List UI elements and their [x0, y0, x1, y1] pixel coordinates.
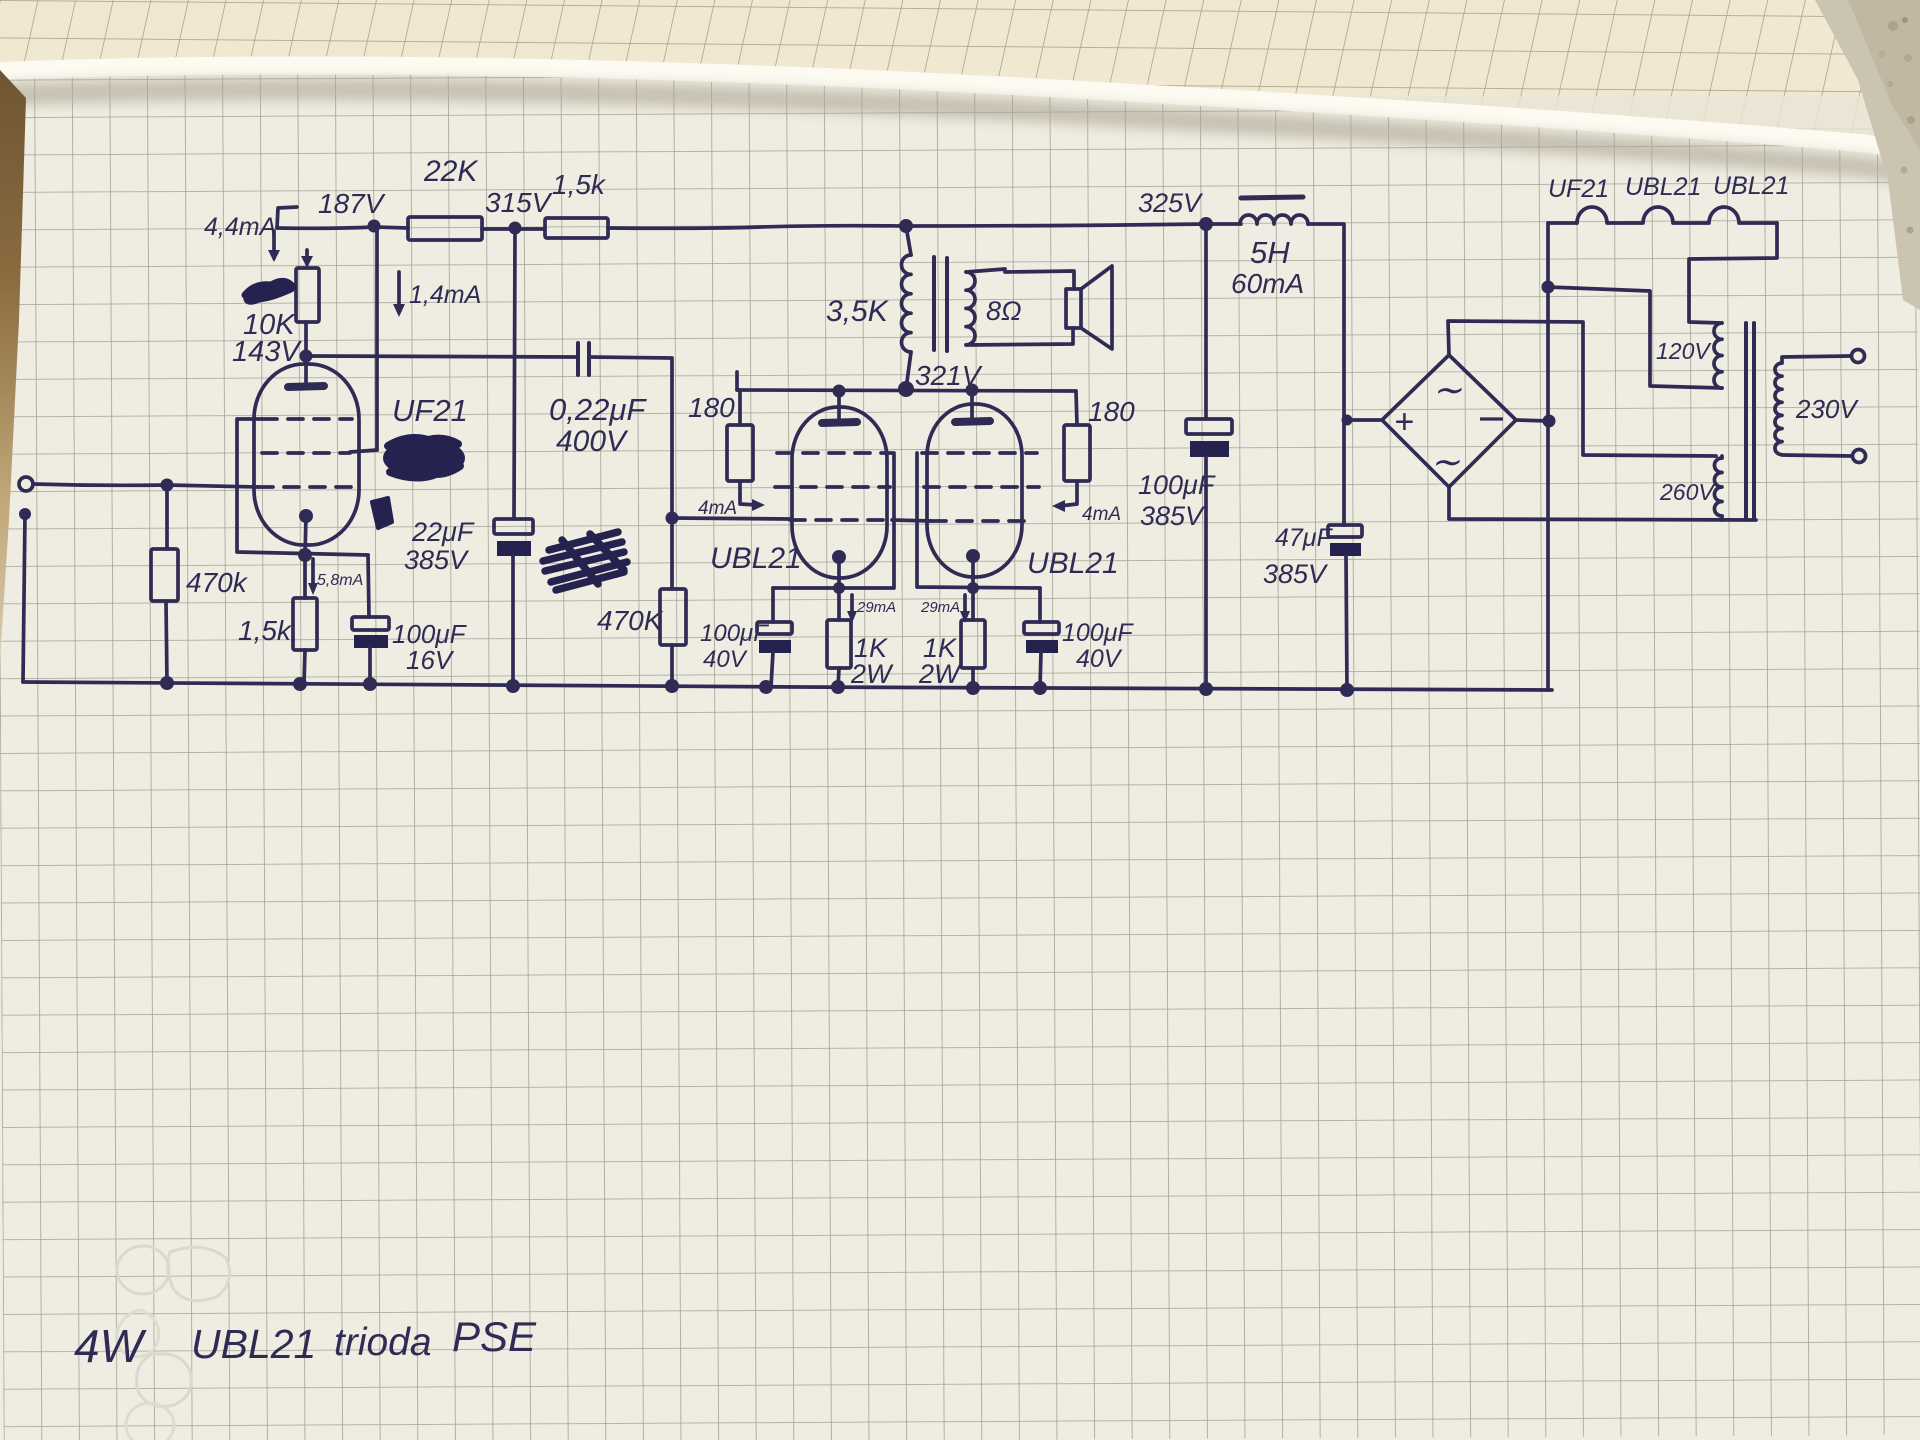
svg-text:470k: 470k	[186, 567, 249, 598]
svg-text:315V: 315V	[485, 187, 553, 218]
svg-text:PSE: PSE	[452, 1313, 537, 1360]
svg-text:trioda: trioda	[334, 1321, 432, 1364]
svg-text:0,22μF: 0,22μF	[549, 392, 647, 427]
svg-text:16V: 16V	[406, 645, 455, 675]
svg-text:385V: 385V	[1140, 501, 1206, 531]
svg-text:143V: 143V	[232, 336, 302, 368]
svg-text:100μF: 100μF	[700, 620, 769, 647]
svg-text:180: 180	[688, 392, 735, 423]
svg-text:230V: 230V	[1795, 394, 1859, 424]
svg-text:1,4mA: 1,4mA	[409, 281, 481, 309]
svg-text:1,5k: 1,5k	[238, 615, 293, 646]
svg-text:∼: ∼	[1430, 441, 1460, 482]
svg-text:100μF: 100μF	[1138, 470, 1216, 500]
svg-text:2W: 2W	[850, 659, 894, 689]
svg-text:∼: ∼	[1432, 369, 1462, 410]
svg-text:4,4mA: 4,4mA	[204, 213, 276, 241]
svg-text:22μF: 22μF	[411, 517, 475, 547]
svg-text:UBL21: UBL21	[191, 1321, 316, 1367]
svg-text:180: 180	[1088, 396, 1135, 427]
svg-text:470K: 470K	[597, 605, 664, 636]
svg-text:385V: 385V	[1263, 559, 1329, 589]
svg-text:5H: 5H	[1250, 235, 1290, 270]
svg-text:4W: 4W	[74, 1320, 148, 1372]
svg-text:8Ω: 8Ω	[986, 296, 1022, 326]
svg-text:260V: 260V	[1659, 479, 1716, 505]
svg-text:22K: 22K	[423, 155, 479, 188]
svg-text:UBL21: UBL21	[710, 542, 802, 575]
svg-text:29mA: 29mA	[856, 599, 896, 616]
svg-text:40V: 40V	[703, 646, 748, 673]
svg-text:400V: 400V	[556, 425, 629, 458]
svg-text:UF21: UF21	[392, 393, 468, 428]
svg-text:100μF: 100μF	[1062, 619, 1134, 647]
svg-text:60mA: 60mA	[1231, 268, 1304, 299]
svg-text:321V: 321V	[915, 360, 983, 391]
svg-text:UBL21: UBL21	[1713, 172, 1789, 200]
svg-text:4mA: 4mA	[1082, 504, 1121, 525]
svg-text:UF21: UF21	[1548, 175, 1609, 203]
svg-text:4mA: 4mA	[698, 498, 737, 519]
svg-text:3,5K: 3,5K	[826, 295, 890, 328]
svg-text:1,5k: 1,5k	[552, 169, 607, 200]
svg-text:2W: 2W	[918, 659, 962, 689]
svg-text:120V: 120V	[1656, 338, 1712, 364]
svg-text:UBL21: UBL21	[1625, 173, 1701, 201]
svg-text:5,8mA: 5,8mA	[317, 572, 363, 589]
svg-text:40V: 40V	[1076, 645, 1123, 673]
svg-text:385V: 385V	[404, 545, 470, 575]
svg-text:UBL21: UBL21	[1027, 547, 1119, 580]
svg-text:29mA: 29mA	[920, 599, 960, 616]
svg-text:47μF: 47μF	[1275, 524, 1334, 552]
svg-text:187V: 187V	[318, 188, 386, 219]
svg-text:+: +	[1394, 403, 1414, 441]
svg-text:325V: 325V	[1138, 188, 1204, 218]
